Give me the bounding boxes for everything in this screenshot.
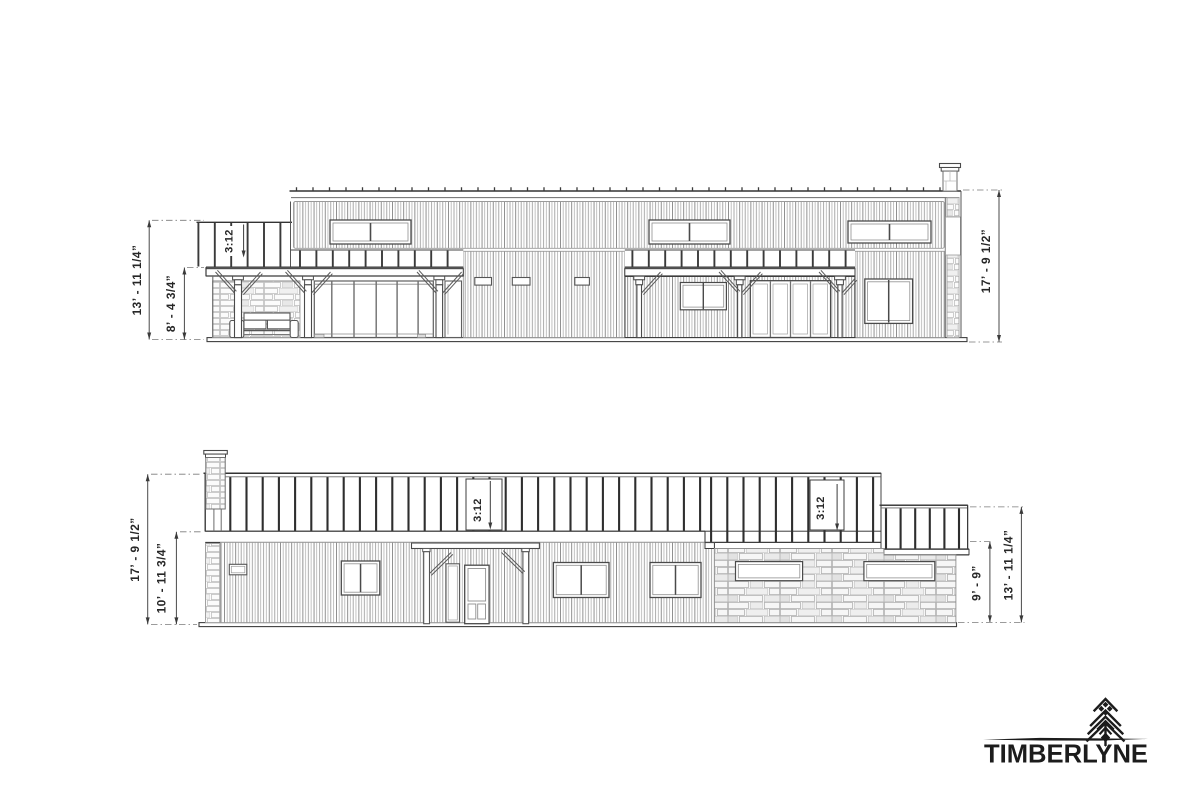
svg-text:10’ - 11 3/4”: 10’ - 11 3/4”: [155, 543, 169, 614]
svg-text:TIMBERLYNE: TIMBERLYNE: [984, 739, 1148, 769]
svg-text:17’ - 9 1/2”: 17’ - 9 1/2”: [128, 517, 142, 581]
svg-text:9’ - 9”: 9’ - 9”: [970, 565, 984, 601]
svg-text:8’ - 4 3/4”: 8’ - 4 3/4”: [164, 275, 178, 332]
svg-text:13’ - 11 1/4”: 13’ - 11 1/4”: [130, 245, 144, 316]
svg-text:17’ - 9 1/2”: 17’ - 9 1/2”: [979, 229, 993, 293]
svg-text:3:12: 3:12: [815, 496, 827, 520]
svg-text:3:12: 3:12: [223, 229, 235, 253]
svg-text:13’ - 11 1/4”: 13’ - 11 1/4”: [1002, 530, 1016, 601]
svg-text:3:12: 3:12: [472, 498, 484, 522]
